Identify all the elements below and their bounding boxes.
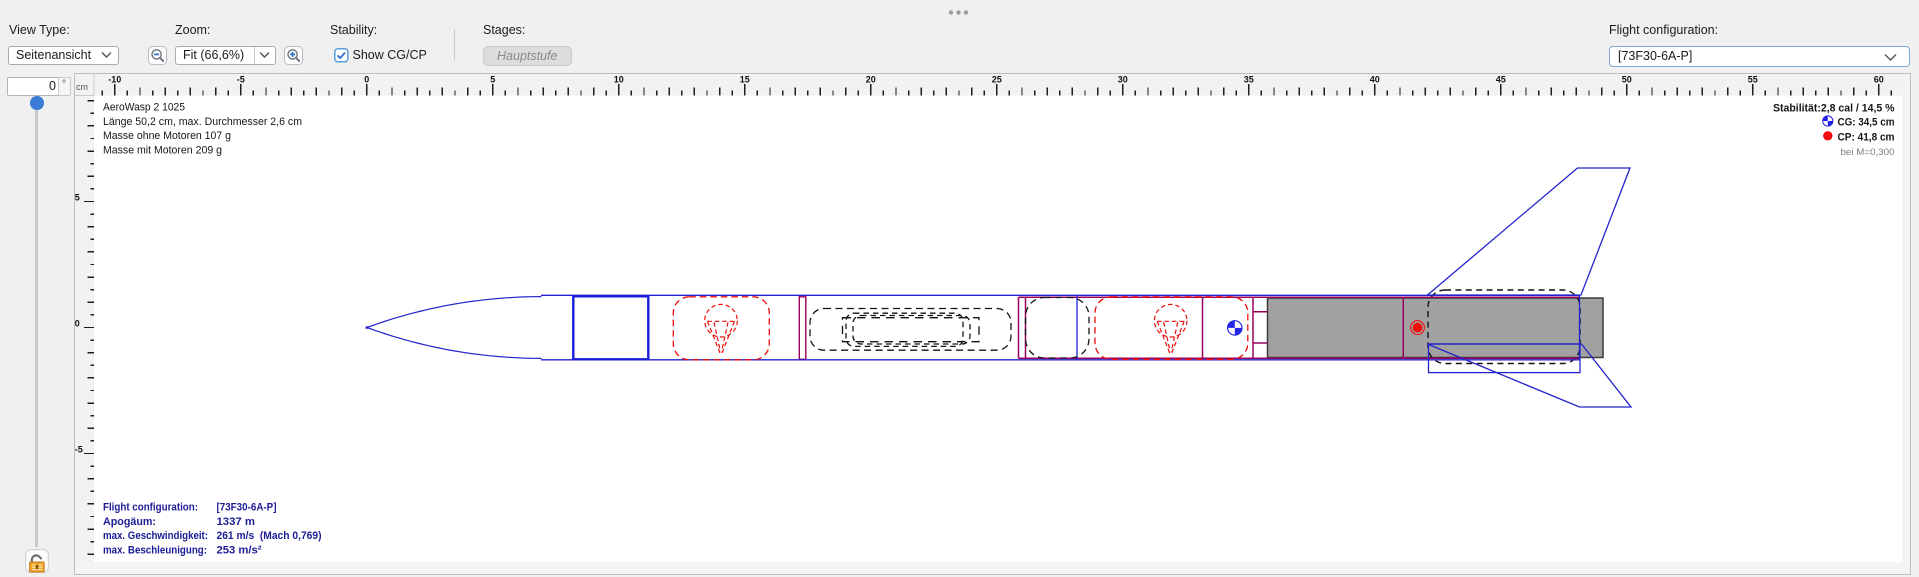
svg-text:Apogäum:: Apogäum:: [103, 516, 156, 528]
svg-text:cm: cm: [76, 82, 88, 92]
svg-text:Masse mit Motoren 209 g: Masse mit Motoren 209 g: [103, 144, 222, 156]
svg-text:50: 50: [1622, 75, 1632, 85]
svg-text:CP: 41,8 cm: CP: 41,8 cm: [1838, 131, 1895, 143]
svg-text:Stabilität:2,8 cal / 14,5 %: Stabilität:2,8 cal / 14,5 %: [1773, 102, 1895, 114]
svg-text:0: 0: [75, 319, 80, 329]
svg-text:Masse ohne Motoren 107 g: Masse ohne Motoren 107 g: [103, 130, 231, 142]
svg-text:AeroWasp 2 1025: AeroWasp 2 1025: [103, 102, 185, 114]
svg-text:Länge 50,2 cm, max. Durchmesse: Länge 50,2 cm, max. Durchmesser 2,6 cm: [103, 116, 302, 128]
svg-text:253 m/s²: 253 m/s²: [217, 545, 262, 557]
svg-text:5: 5: [75, 193, 80, 203]
svg-text:40: 40: [1370, 75, 1380, 85]
svg-text:55: 55: [1748, 75, 1758, 85]
svg-text:[73F30-6A-P]: [73F30-6A-P]: [217, 502, 277, 514]
svg-text:25: 25: [992, 75, 1002, 85]
svg-text:30: 30: [1118, 75, 1128, 85]
svg-text:max. Geschwindigkeit:: max. Geschwindigkeit:: [103, 530, 208, 542]
svg-text:-5: -5: [75, 445, 83, 455]
svg-text:1337 m: 1337 m: [217, 516, 256, 528]
svg-text:35: 35: [1244, 75, 1254, 85]
svg-text:CG: 34,5 cm: CG: 34,5 cm: [1838, 117, 1895, 129]
svg-text:261 m/s (Mach 0,769): 261 m/s (Mach 0,769): [217, 530, 322, 542]
svg-text:0: 0: [364, 75, 369, 85]
svg-text:10: 10: [614, 75, 624, 85]
svg-text:max. Beschleunigung:: max. Beschleunigung:: [103, 545, 207, 557]
svg-text:20: 20: [866, 75, 876, 85]
svg-text:15: 15: [740, 75, 750, 85]
svg-text:60: 60: [1874, 75, 1884, 85]
svg-text:45: 45: [1496, 75, 1506, 85]
svg-text:Flight configuration:: Flight configuration:: [103, 502, 198, 514]
svg-text:bei M=0,300: bei M=0,300: [1841, 147, 1895, 158]
svg-text:-5: -5: [237, 75, 245, 85]
svg-text:-10: -10: [108, 75, 121, 85]
svg-text:5: 5: [490, 75, 495, 85]
